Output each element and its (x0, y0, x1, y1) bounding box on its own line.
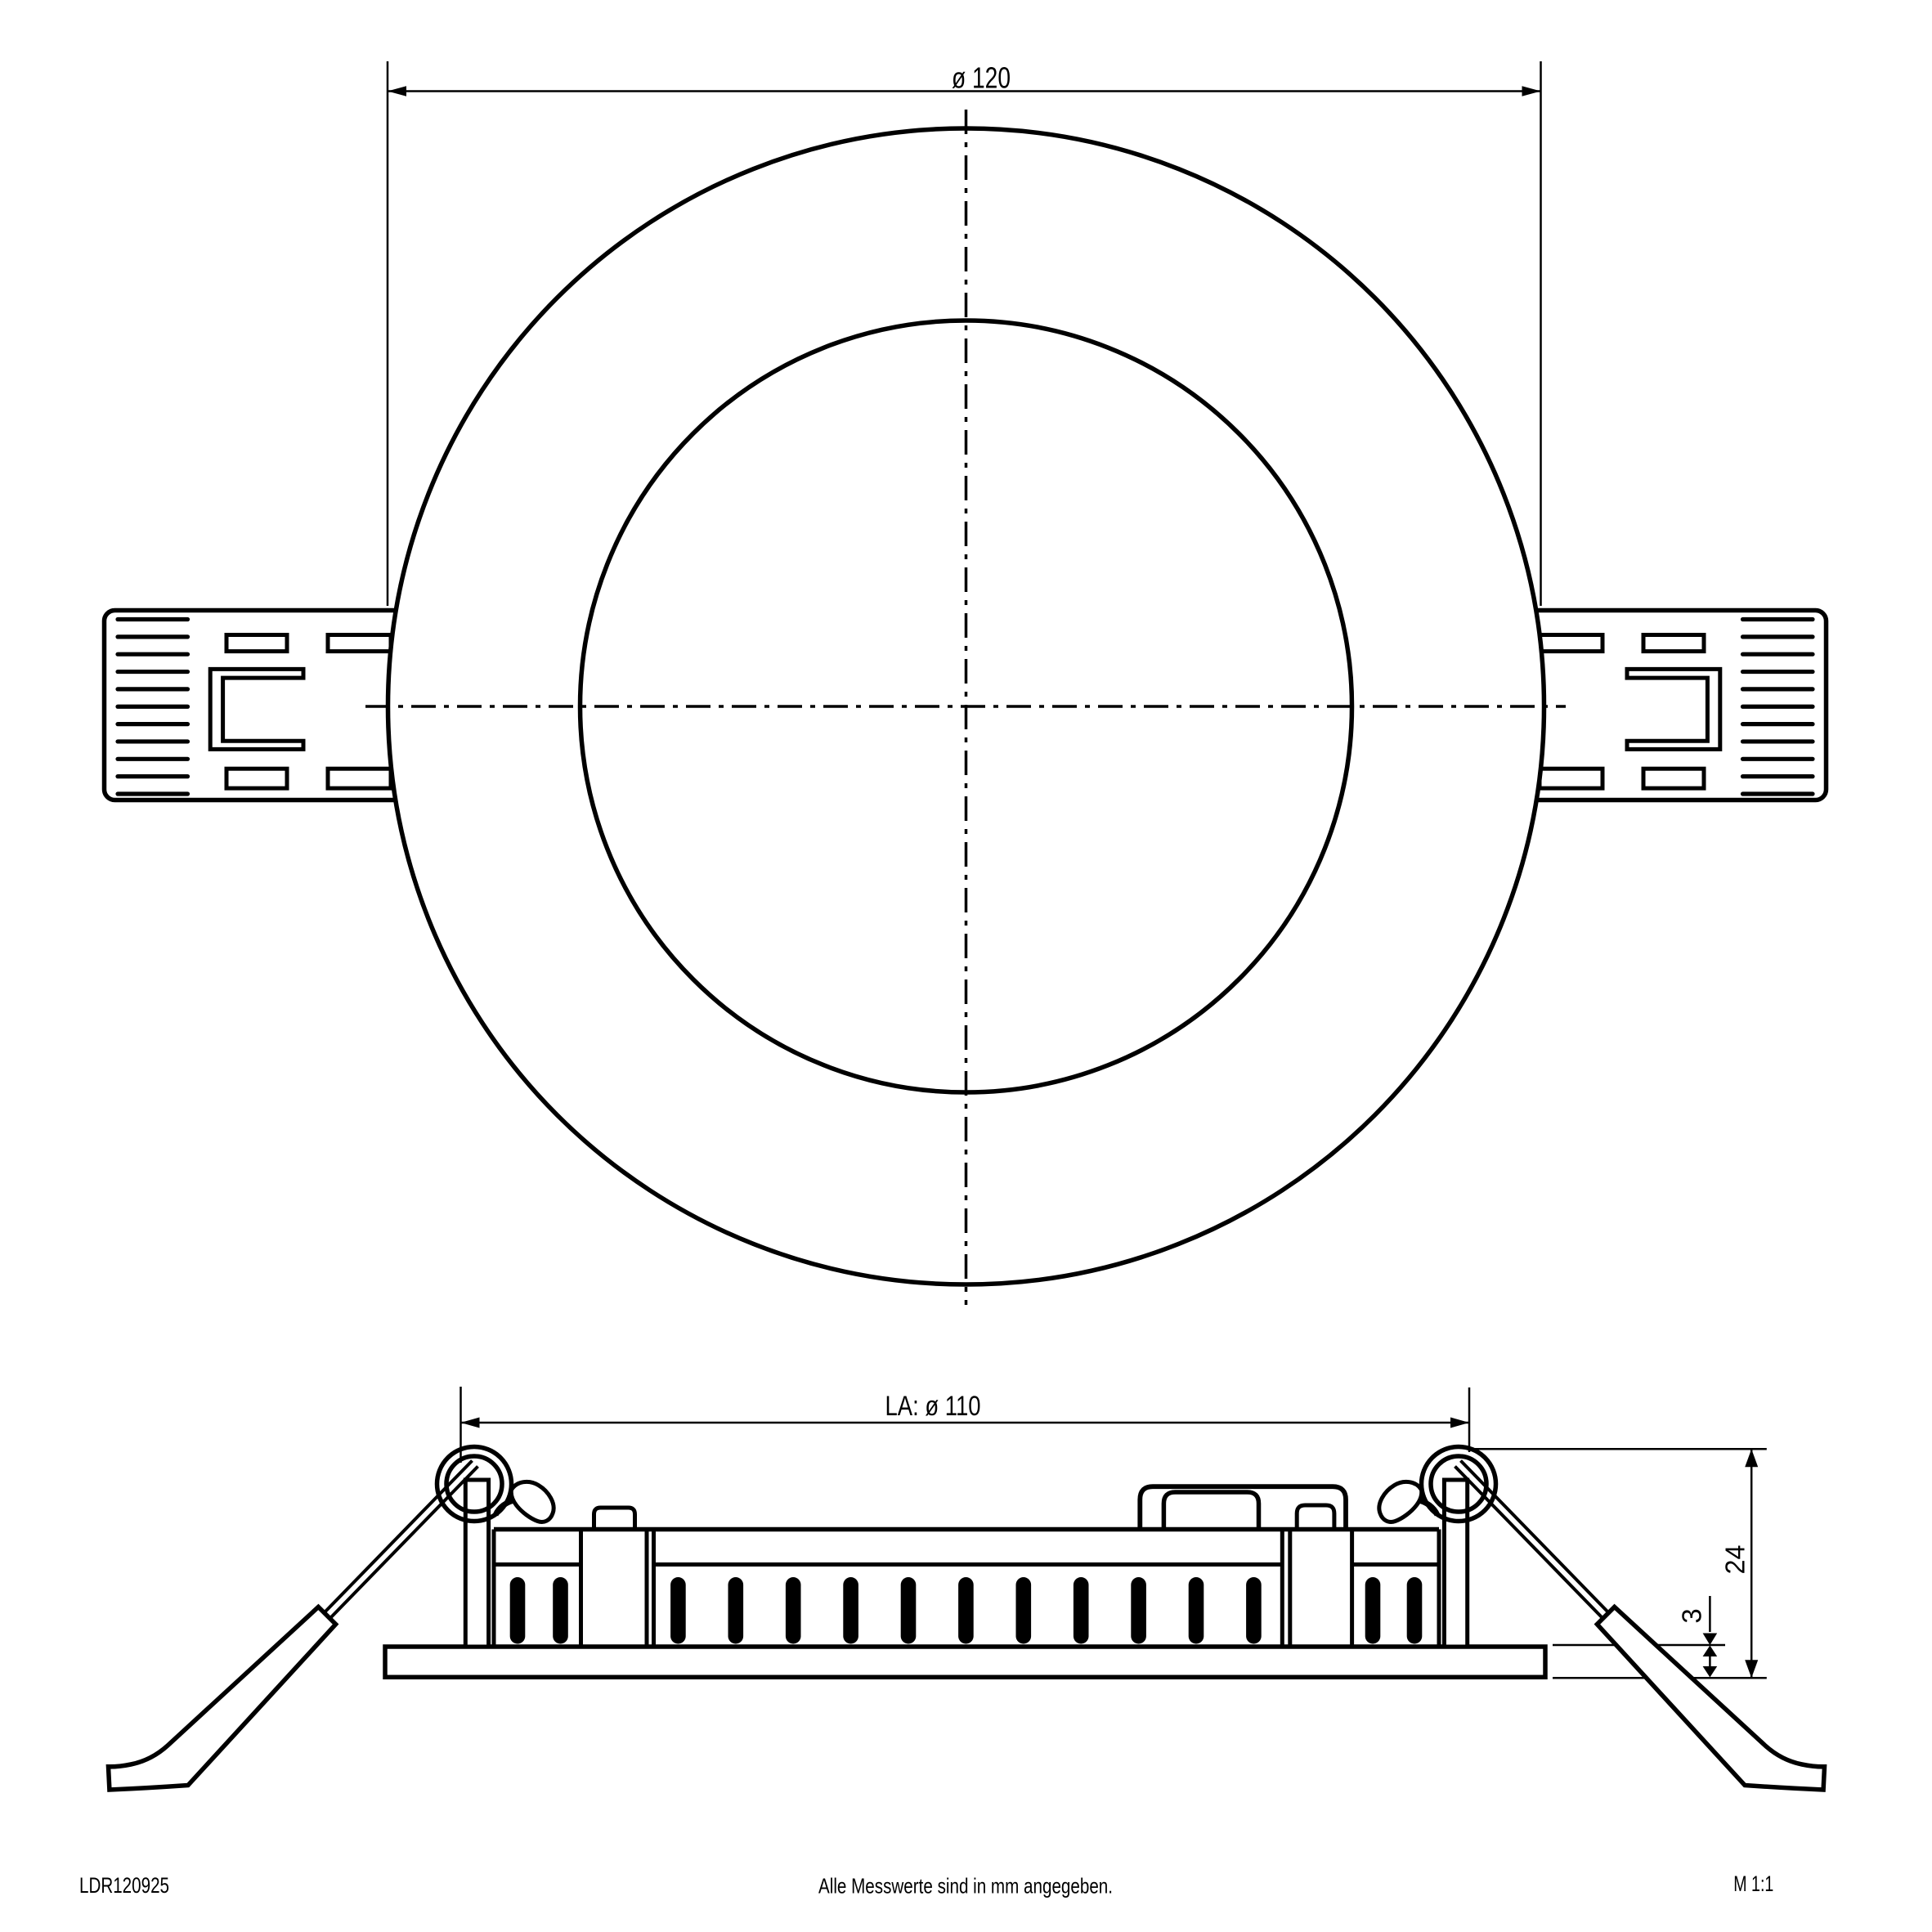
svg-text:3: 3 (1677, 1608, 1707, 1623)
svg-text:ø 120: ø 120 (952, 61, 1011, 94)
svg-text:LDR120925: LDR120925 (79, 1873, 169, 1898)
svg-text:24: 24 (1720, 1545, 1750, 1575)
svg-text:Alle Messwerte sind in mm ange: Alle Messwerte sind in mm angegeben. (818, 1874, 1113, 1898)
svg-text:LA: ø 110: LA: ø 110 (885, 1391, 981, 1422)
svg-text:M 1:1: M 1:1 (1733, 1871, 1773, 1896)
